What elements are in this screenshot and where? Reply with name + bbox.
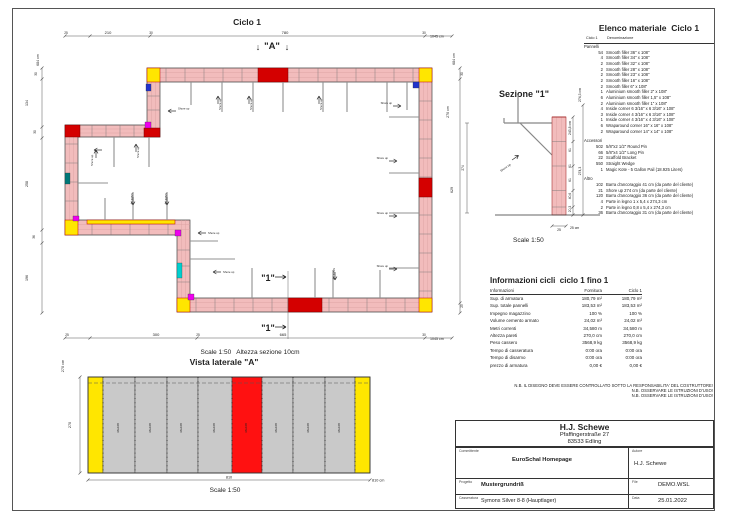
nb-note-line: N.B. OSSERVARE LE ISTRUZIONI D'USO! bbox=[383, 393, 713, 398]
committente-label: Committente bbox=[459, 449, 479, 453]
plan-scale-note: Scale 1:50 Altezza sezione 10cm bbox=[200, 349, 299, 356]
dim-label: 30 bbox=[34, 72, 38, 76]
material-list-header: Ciclo 1 Denominazione bbox=[584, 36, 714, 44]
red-panel bbox=[144, 128, 160, 137]
shore-annotations: Shore up Shore up Shore up Shore up Shor… bbox=[90, 96, 401, 280]
progetto-value: Mustergrundriß bbox=[481, 482, 524, 488]
shore-up-label: Shore up bbox=[218, 98, 222, 110]
blue-filler bbox=[146, 84, 151, 91]
red-panel bbox=[419, 178, 432, 197]
col-informazioni: Informazioni bbox=[490, 288, 514, 293]
dim-label: 20,3 bbox=[568, 206, 572, 213]
dim-label: 30 bbox=[460, 72, 464, 76]
yellow-panel bbox=[419, 68, 432, 82]
titleblock-grid: Committente EuroSchal Homepage Autore H.… bbox=[455, 447, 714, 509]
info-row: Tempo di disarmo 0:00 ora 0:00 ora bbox=[490, 354, 642, 361]
material-group-accessories: 5025/8"x2 1/2" Round Pin665/8"x4 1/2" Lo… bbox=[584, 144, 714, 172]
dim-total: 1045 cm bbox=[430, 35, 444, 39]
drawing-sheet: Ciclo 1 ↓ "A" ↓ bbox=[0, 0, 730, 517]
autore-value: H.J. Schewe bbox=[634, 461, 667, 467]
material-group-other: 102Barra d'ancoraggio 41 cm (da parte de… bbox=[584, 182, 714, 216]
shore-arrow-icon bbox=[213, 270, 221, 274]
down-arrow-icon: ↓ bbox=[256, 42, 261, 52]
info-row: Volume cemento armato 24,02 m³ 24,02 m³ bbox=[490, 317, 642, 324]
cyan-filler bbox=[177, 263, 182, 278]
titleblock-company-cell: H.J. Schewe Pfaffingerstraße 27 83533 Ed… bbox=[455, 420, 714, 447]
material-list-title: Elenco materiale Ciclo 1 bbox=[584, 23, 714, 33]
material-list: Elenco materiale Ciclo 1 Ciclo 1 Denomin… bbox=[584, 23, 714, 216]
progetto-label: Progetto bbox=[459, 480, 472, 484]
dim-label: 270 bbox=[68, 422, 72, 428]
col-qty-header: Ciclo 1 bbox=[586, 36, 598, 40]
material-row: 36Barra d'ancoraggio 31 cm (da parte del… bbox=[584, 210, 714, 216]
section-marker-1: "1" bbox=[261, 323, 275, 333]
dim-total: 1045 cm bbox=[430, 337, 444, 341]
dim-label: 210 bbox=[105, 30, 112, 35]
panel-label: 36x108 bbox=[337, 423, 341, 433]
dim-label: 30 bbox=[422, 31, 426, 35]
dim-label: 629 bbox=[450, 187, 454, 193]
magenta-corner bbox=[175, 230, 181, 236]
shore-up-label: Shore up bbox=[208, 231, 220, 235]
committente-value: EuroSchal Homepage bbox=[456, 457, 628, 463]
side-view-panels bbox=[88, 377, 370, 473]
side-view-scale: Scale 1:50 bbox=[210, 487, 241, 494]
material-row: 1Magic Kote - 5 Gallon Pail (18.925 Lite… bbox=[584, 167, 714, 173]
shore-arrow-icon bbox=[393, 104, 401, 108]
info-row: Peso cassero 3568,9 kg 3568,9 kg bbox=[490, 339, 642, 346]
dim-label: 25 bbox=[65, 333, 69, 337]
shore-arrow-icon bbox=[168, 109, 176, 113]
dim-label: 61 bbox=[568, 178, 572, 182]
shore-arrow-icon bbox=[511, 154, 520, 162]
dim-labels-left: 684 cm 30 134 30 258 36 196 bbox=[25, 54, 40, 281]
dim-label: 274 bbox=[461, 165, 465, 171]
material-row: 2Wraparound corner 14" x 14" x 108" bbox=[584, 129, 714, 135]
info-row: Altezza pareti 270,0 cm 270,0 cm bbox=[490, 332, 642, 339]
shore-up-label: Shore up bbox=[381, 101, 393, 105]
shore-up-label: Shore up bbox=[178, 107, 190, 111]
dim-label: 36 bbox=[32, 235, 36, 239]
nb-notes: N.B. IL DISEGNO DEVE ESSERE CONTROLLATO … bbox=[383, 383, 713, 399]
info-row: Metri correnti 34,580 m 34,580 m bbox=[490, 325, 642, 332]
info-row: Sup. di armatura 180,79 m² 180,79 m² bbox=[490, 295, 642, 302]
autore-label: Autore bbox=[632, 449, 642, 453]
col-fornitura: Fornitura bbox=[584, 288, 602, 293]
panel-label: 36x108 bbox=[244, 423, 248, 433]
info-row: Tempo di casseratura 0:00 ora 0:00 ora bbox=[490, 347, 642, 354]
dim-label: 196 bbox=[25, 275, 29, 281]
col-name-header: Denominazione bbox=[607, 36, 633, 40]
shore-up-label: Shore up bbox=[223, 270, 235, 274]
info-row: Impegno magazzino 100 % 100 % bbox=[490, 310, 642, 317]
shore-arrow-icon bbox=[389, 214, 397, 218]
shore-up-label: Shore up bbox=[130, 193, 134, 205]
dim-label: 274,3 bbox=[578, 167, 582, 176]
panel-label: 36x108 bbox=[179, 423, 183, 433]
dim-label: 780 bbox=[282, 30, 289, 35]
section-title: Sezione "1" bbox=[499, 89, 549, 99]
blue-filler bbox=[413, 82, 419, 88]
cycle-info-title: Informazioni cicli ciclo 1 fino 1 bbox=[490, 276, 642, 285]
dim-label: 61 bbox=[568, 164, 572, 168]
shore-arrow-icon bbox=[198, 231, 206, 235]
shore-lines bbox=[78, 82, 419, 298]
red-panel bbox=[65, 125, 80, 137]
down-arrow-icon: ↓ bbox=[285, 42, 290, 52]
dim-label: 25 bbox=[460, 304, 464, 308]
dim-label: 25 bbox=[196, 333, 200, 337]
titleblock-row-line bbox=[456, 494, 713, 495]
dim-label: 270 cm bbox=[446, 106, 450, 118]
red-panel bbox=[258, 68, 288, 82]
yellow-end-panel bbox=[88, 377, 103, 473]
dim-label: 40,6 bbox=[568, 193, 572, 200]
dim-label: 810 bbox=[226, 476, 232, 480]
panel-label: 36x108 bbox=[212, 423, 216, 433]
dim-total: 270 cm bbox=[61, 360, 65, 372]
col-ciclo1: Ciclo 1 bbox=[629, 288, 642, 293]
dim-label: 300 bbox=[153, 332, 160, 337]
side-view-title: Vista laterale "A" bbox=[190, 357, 259, 367]
magenta-corner bbox=[73, 216, 79, 221]
panel-label: 36x108 bbox=[148, 423, 152, 433]
cycle-info-header: Informazioni Fornitura Ciclo 1 bbox=[490, 288, 642, 295]
yellow-panel bbox=[419, 298, 432, 312]
dim-total: 243,8 cm bbox=[568, 121, 572, 135]
dim-label: 665 bbox=[280, 332, 287, 337]
plan-title: Ciclo 1 bbox=[233, 17, 261, 27]
dim-total: 684 cm bbox=[36, 54, 40, 66]
info-row: prezzo di armatura 0,00 € 0,00 € bbox=[490, 362, 642, 369]
side-view: Vista laterale "A" 36x108 36x108 36x1 bbox=[61, 357, 384, 494]
material-group-panels: 54Smooth filler 36" x 108"4Smooth filler… bbox=[584, 50, 714, 135]
data-label: Data bbox=[632, 496, 639, 500]
scaffold-bracket bbox=[504, 95, 552, 155]
titleblock-row-line bbox=[456, 478, 713, 479]
yellow-filler-strip bbox=[87, 220, 175, 224]
shore-up-label: Shore up bbox=[332, 268, 336, 280]
dim-total: 810 cm bbox=[372, 479, 384, 483]
dim-label: 30 bbox=[422, 333, 426, 337]
magenta-corner bbox=[145, 122, 151, 128]
magenta-corner bbox=[188, 294, 194, 300]
dim-total: 274,3 cm bbox=[578, 88, 582, 102]
shore-up-label: Shore up bbox=[377, 156, 389, 160]
shore-up-label: Shore up bbox=[249, 98, 253, 110]
plan-view: Ciclo 1 ↓ "A" ↓ bbox=[25, 17, 469, 356]
dim-label: 25 bbox=[64, 31, 68, 35]
dim-labels-top: 25 210 30 780 30 1045 cm bbox=[64, 30, 444, 39]
casseratura-value: Symons Silver 8-8 (Hauptlager) bbox=[481, 498, 556, 504]
shore-arrow-icon bbox=[389, 159, 397, 163]
cycle-info-table: Informazioni cicli ciclo 1 fino 1 Inform… bbox=[490, 276, 642, 369]
shore-up-label: Shore up bbox=[136, 146, 140, 158]
data-value: 25.01.2022 bbox=[658, 498, 687, 504]
yellow-end-panel bbox=[355, 377, 370, 473]
dim-label: 25 cm bbox=[570, 226, 579, 230]
shore-up-label: Shore up bbox=[90, 154, 94, 166]
shore-up-label: Shore up bbox=[377, 211, 389, 215]
shore-up-label: Shore up bbox=[377, 264, 389, 268]
company-address-line2: 83533 Edling bbox=[456, 439, 713, 446]
accent-fillers bbox=[65, 82, 419, 300]
panel-label: 36x108 bbox=[116, 423, 120, 433]
file-label: File bbox=[632, 480, 638, 484]
shore-up-label: Shore up bbox=[164, 193, 168, 205]
dim-labels-right: 684 cm 30 270 cm 629 25 274 bbox=[446, 53, 465, 308]
casseratura-label: Casseratura bbox=[459, 496, 478, 500]
info-row: Sup. totale pannelli 183,53 m² 183,53 m² bbox=[490, 302, 642, 309]
dim-label: 30 bbox=[149, 31, 153, 35]
shore-up-label: Shore up bbox=[499, 162, 512, 172]
section-marker-1: "1" bbox=[261, 273, 275, 283]
dim-labels-bottom: 25 300 25 665 30 1045 cm bbox=[65, 332, 444, 341]
yellow-panel bbox=[65, 220, 78, 235]
shore-up-label: Shore up bbox=[319, 98, 323, 110]
section-marker-a: "A" bbox=[264, 41, 280, 52]
section-scale: Scale 1:50 bbox=[513, 237, 544, 244]
teal-filler bbox=[65, 173, 70, 184]
dim-label: 30 bbox=[33, 130, 37, 134]
dim-label: 134 bbox=[25, 100, 29, 106]
dim-label: 25 bbox=[557, 228, 561, 232]
file-value: DEMO.WSL bbox=[658, 482, 690, 488]
red-panel bbox=[288, 298, 322, 312]
dim-label: 258 bbox=[25, 181, 29, 187]
panel-label: 36x108 bbox=[306, 423, 310, 433]
cycle-info-rows: Sup. di armatura 180,79 m² 180,79 m² Sup… bbox=[490, 295, 642, 369]
panel-label: 36x108 bbox=[274, 423, 278, 433]
dim-total: 684 cm bbox=[452, 53, 456, 65]
company-name: H.J. Schewe bbox=[456, 422, 713, 432]
dim-label: 61 bbox=[568, 148, 572, 152]
yellow-panel bbox=[147, 68, 160, 82]
